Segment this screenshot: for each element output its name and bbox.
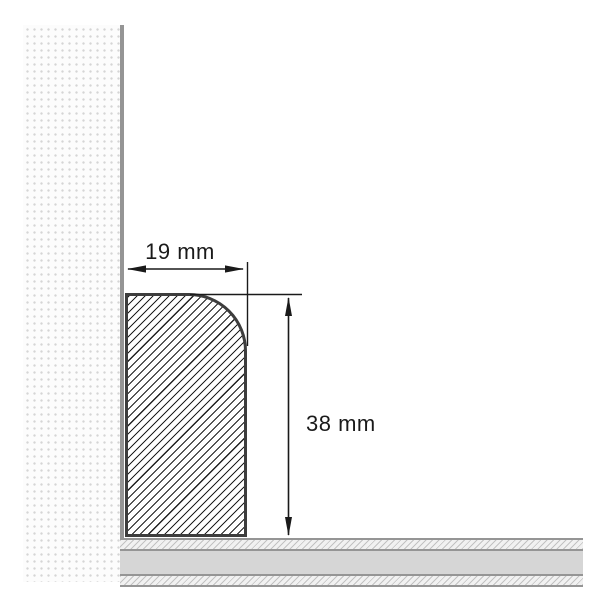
floor-upper-hatch-layer: [120, 540, 583, 549]
width-arrow-right: [225, 265, 244, 272]
wall-surface-line: [120, 25, 124, 582]
floor-core-layer: [120, 551, 583, 574]
floor: [120, 538, 583, 587]
floor-bottom-edge-line: [120, 585, 583, 587]
floor-lower-hatch-layer: [120, 576, 583, 585]
height-arrow-top: [285, 297, 292, 316]
width-arrow-left: [127, 265, 146, 272]
height-dimension-label: 38 mm: [306, 413, 376, 435]
skirting-profile: [125, 293, 247, 537]
wall-texture: [23, 25, 120, 582]
skirting-board-cross-section-diagram: 19 mm 38 mm: [0, 0, 604, 604]
width-dimension-label: 19 mm: [120, 241, 240, 263]
height-arrow-bottom: [285, 517, 292, 536]
